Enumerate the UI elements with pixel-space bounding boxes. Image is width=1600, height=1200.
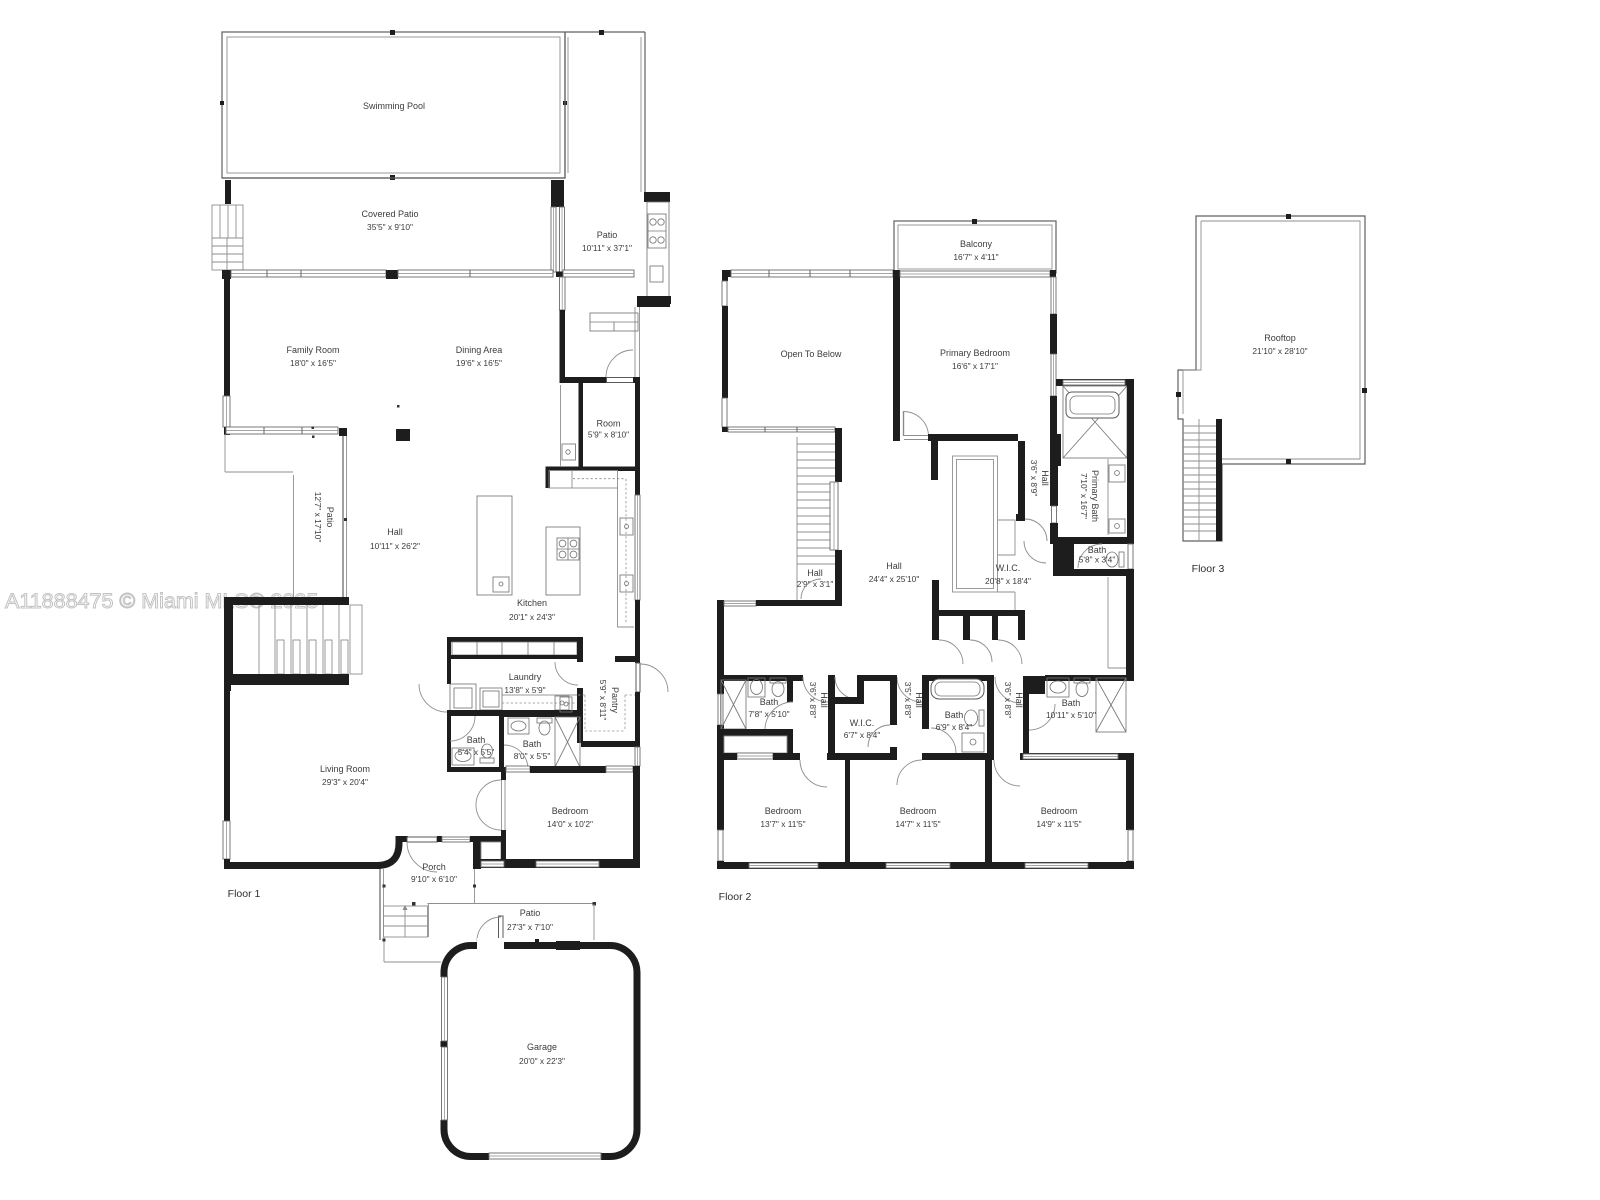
svg-text:24'4" x 25'10": 24'4" x 25'10" <box>869 574 920 584</box>
svg-text:14'0" x 10'2": 14'0" x 10'2" <box>547 819 593 829</box>
svg-text:35'5" x 9'10": 35'5" x 9'10" <box>367 222 413 232</box>
svg-text:Bath: Bath <box>523 739 542 749</box>
svg-text:Living Room: Living Room <box>320 764 370 774</box>
svg-text:20'0" x 22'3": 20'0" x 22'3" <box>519 1056 565 1066</box>
svg-text:16'7" x 4'11": 16'7" x 4'11" <box>953 252 998 262</box>
svg-text:19'6" x 16'5": 19'6" x 16'5" <box>456 358 502 368</box>
svg-text:Bath: Bath <box>1088 545 1107 555</box>
svg-text:Room: Room <box>596 419 620 429</box>
svg-text:W.I.C.: W.I.C. <box>850 718 875 728</box>
svg-text:9'10" x 6'10": 9'10" x 6'10" <box>411 874 457 884</box>
svg-text:Rooftop: Rooftop <box>1264 333 1296 343</box>
svg-text:Open To Below: Open To Below <box>781 349 842 359</box>
svg-text:7'10" x 16'7": 7'10" x 16'7" <box>1079 473 1089 519</box>
svg-text:13'7" x 11'5": 13'7" x 11'5" <box>760 819 805 829</box>
svg-text:Hall: Hall <box>886 561 902 571</box>
svg-text:Swimming Pool: Swimming Pool <box>363 101 425 111</box>
svg-text:14'9" x 11'5": 14'9" x 11'5" <box>1036 819 1081 829</box>
svg-text:3'6" x 8'8": 3'6" x 8'8" <box>808 682 818 719</box>
svg-text:6'9" x 8'4": 6'9" x 8'4" <box>936 722 973 732</box>
svg-text:Hall: Hall <box>807 568 823 578</box>
svg-text:13'8" x 5'9": 13'8" x 5'9" <box>504 685 545 695</box>
svg-text:8'0" x 5'5": 8'0" x 5'5" <box>514 751 551 761</box>
svg-text:Bath: Bath <box>1062 698 1081 708</box>
svg-text:Bedroom: Bedroom <box>900 806 937 816</box>
svg-text:10'11" x 5'10": 10'11" x 5'10" <box>1046 710 1096 720</box>
svg-text:5'9" x 8'11": 5'9" x 8'11" <box>598 680 608 721</box>
svg-text:Bath: Bath <box>760 697 779 707</box>
svg-text:3'6" x 8'9": 3'6" x 8'9" <box>1029 460 1039 497</box>
svg-text:5'8" x 3'4": 5'8" x 3'4" <box>1079 555 1116 565</box>
svg-text:27'3" x 7'10": 27'3" x 7'10" <box>507 922 553 932</box>
svg-text:Pantry: Pantry <box>610 687 620 714</box>
svg-text:16'6" x 17'1": 16'6" x 17'1" <box>952 361 998 371</box>
svg-text:Patio: Patio <box>597 230 618 240</box>
svg-text:W.I.C.: W.I.C. <box>996 563 1021 573</box>
svg-text:Floor 2: Floor 2 <box>719 891 752 903</box>
svg-text:3'5" x 8'8": 3'5" x 8'8" <box>903 682 913 719</box>
svg-text:Primary Bedroom: Primary Bedroom <box>940 348 1010 358</box>
svg-text:Family Room: Family Room <box>286 345 339 355</box>
svg-text:20'8" x 18'4": 20'8" x 18'4" <box>985 576 1031 586</box>
svg-text:10'11" x 26'2": 10'11" x 26'2" <box>370 541 420 551</box>
svg-text:14'7" x 11'5": 14'7" x 11'5" <box>895 819 940 829</box>
svg-text:Bath: Bath <box>945 710 964 720</box>
svg-text:Patio: Patio <box>520 908 541 918</box>
svg-text:29'3" x 20'4": 29'3" x 20'4" <box>322 777 368 787</box>
svg-text:Patio: Patio <box>325 507 335 528</box>
svg-text:2'9" x 3'1": 2'9" x 3'1" <box>797 579 834 589</box>
svg-text:Hall: Hall <box>387 527 403 537</box>
svg-text:Covered Patio: Covered Patio <box>361 209 418 219</box>
svg-text:Laundry: Laundry <box>509 672 542 682</box>
svg-text:Hall: Hall <box>1040 470 1050 486</box>
svg-text:Bedroom: Bedroom <box>552 806 589 816</box>
svg-text:3'6" x 8'8": 3'6" x 8'8" <box>1003 682 1013 719</box>
svg-text:5'4" x 5'5": 5'4" x 5'5" <box>458 747 495 757</box>
svg-text:Floor 3: Floor 3 <box>1192 563 1225 575</box>
svg-text:5'9" x 8'10": 5'9" x 8'10" <box>588 430 629 440</box>
svg-text:12'7" x 17'10": 12'7" x 17'10" <box>313 492 323 543</box>
svg-text:18'0" x 16'5": 18'0" x 16'5" <box>290 358 336 368</box>
svg-text:Floor 1: Floor 1 <box>228 888 261 900</box>
svg-text:10'11" x 37'1": 10'11" x 37'1" <box>582 243 632 253</box>
svg-text:Bedroom: Bedroom <box>1041 806 1078 816</box>
svg-text:Primary Bath: Primary Bath <box>1090 470 1100 522</box>
svg-text:21'10" x 28'10": 21'10" x 28'10" <box>1252 346 1307 356</box>
svg-text:Hall: Hall <box>1014 692 1024 708</box>
svg-text:Dining Area: Dining Area <box>456 345 503 355</box>
svg-text:Kitchen: Kitchen <box>517 598 547 608</box>
svg-text:Bedroom: Bedroom <box>765 806 802 816</box>
svg-text:Balcony: Balcony <box>960 239 993 249</box>
svg-text:Bath: Bath <box>467 735 486 745</box>
svg-text:Garage: Garage <box>527 1042 557 1052</box>
svg-text:Porch: Porch <box>422 862 446 872</box>
svg-text:Hall: Hall <box>819 692 829 708</box>
svg-text:20'1" x 24'3": 20'1" x 24'3" <box>509 612 555 622</box>
svg-text:7'8" x 5'10": 7'8" x 5'10" <box>748 709 789 719</box>
